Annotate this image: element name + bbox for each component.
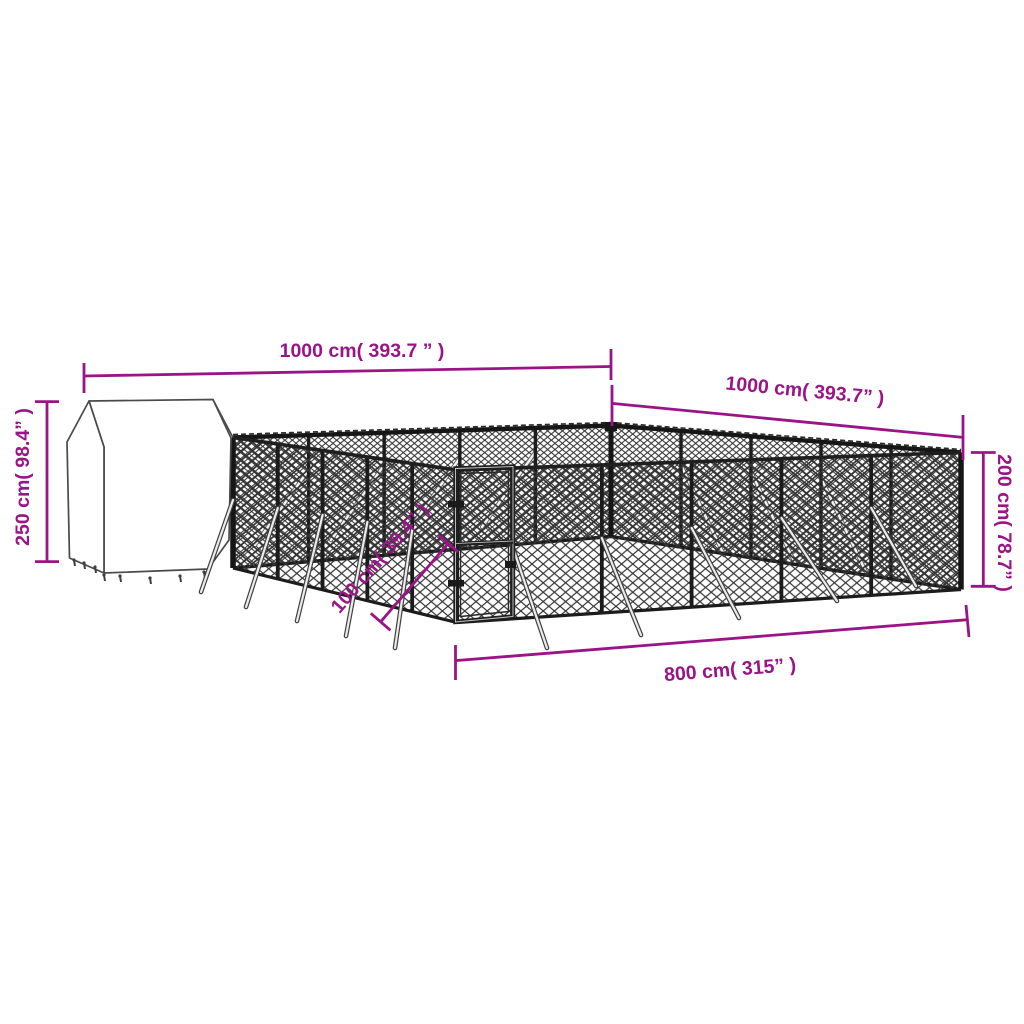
svg-text:1000 cm( 393.7 ” ): 1000 cm( 393.7 ” ) (280, 340, 445, 362)
svg-text:200 cm( 78.7” ): 200 cm( 78.7” ) (993, 454, 1015, 592)
svg-text:250 cm( 98.4” ): 250 cm( 98.4” ) (12, 408, 34, 546)
